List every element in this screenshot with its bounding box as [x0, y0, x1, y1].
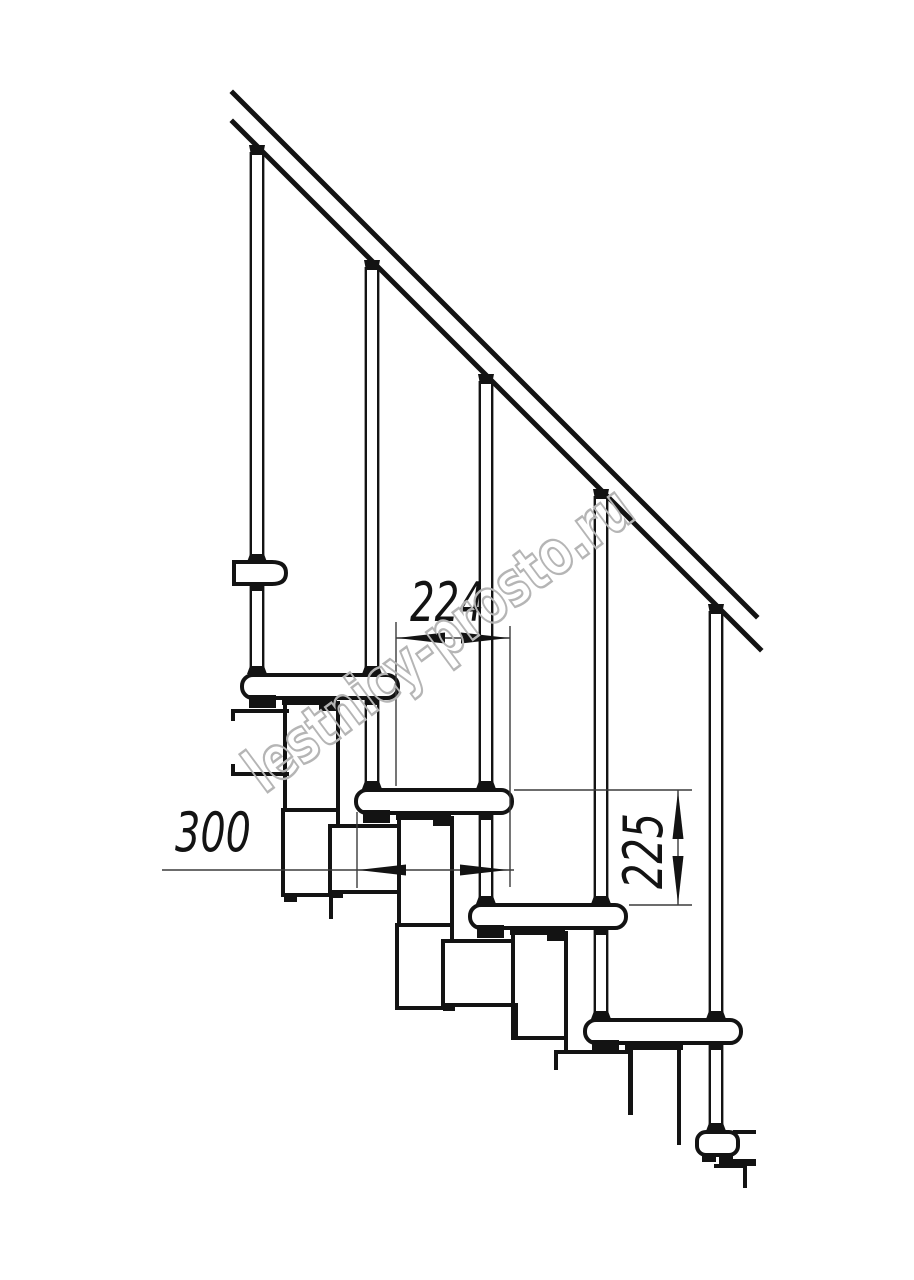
- baluster-1: [249, 145, 265, 674]
- module-corner-tab: [443, 1003, 455, 1011]
- baluster-collar: [476, 781, 496, 789]
- dimension-label-300: 300: [175, 801, 251, 864]
- baluster-collar: [247, 666, 267, 674]
- baluster-collar: [362, 781, 382, 789]
- dimension-label-225: 225: [612, 813, 675, 889]
- staircase-drawing-canvas: 224 300 225 lestnicy-prosto.ru: [0, 0, 914, 1280]
- lower-step-cut-line: [716, 1166, 745, 1186]
- upper-flight-tread-end: [234, 562, 286, 584]
- lower-flight-tread-end: [697, 1132, 738, 1155]
- module-corner-tab: [284, 893, 297, 902]
- module-stem-2: [399, 818, 452, 925]
- tread-4: [585, 1020, 741, 1043]
- baluster-collar: [591, 1011, 611, 1019]
- arrowhead-right-icon: [460, 865, 508, 876]
- baluster-collar: [591, 896, 611, 904]
- handrail-upper-line: [233, 93, 756, 616]
- lower-step-cut: [702, 1155, 756, 1186]
- dimension-riser-225: 225: [514, 790, 692, 905]
- baluster-5: [708, 604, 724, 1131]
- baluster-collar: [706, 1011, 726, 1019]
- tread-3: [470, 905, 626, 928]
- baluster-collar: [247, 554, 267, 562]
- module-stem-3: [513, 933, 566, 1038]
- module-box-c2: [443, 941, 517, 1005]
- module-corner-tab: [330, 890, 343, 898]
- module-box-c3-cut: [556, 1052, 631, 1113]
- watermark-text: lestnicy-prosto.ru: [230, 471, 647, 807]
- module-box-c1: [330, 826, 403, 892]
- tread-2: [356, 790, 512, 813]
- staircase-drawing: 224 300 225 lestnicy-prosto.ru: [0, 0, 914, 1280]
- baluster-4: [593, 489, 609, 1019]
- baluster-collar: [706, 1123, 726, 1131]
- baluster-collar: [476, 896, 496, 904]
